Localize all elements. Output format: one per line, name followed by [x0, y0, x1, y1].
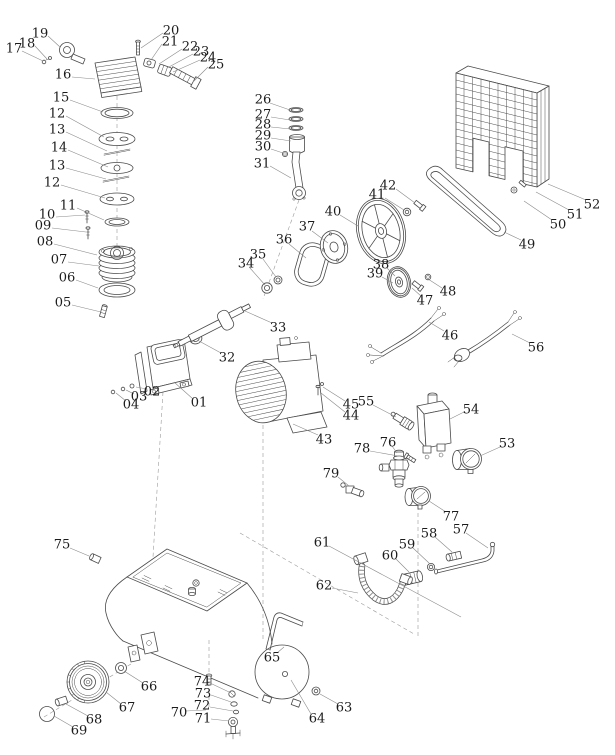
part-label-36: 36: [276, 233, 293, 248]
part-label-21: 21: [162, 35, 179, 50]
gasket-06: [99, 283, 135, 297]
part-label-31: 31: [254, 157, 271, 172]
leader-line-19-0: [48, 36, 60, 47]
screws-09-10: [85, 211, 90, 239]
valve-plate-stack: [85, 108, 135, 240]
tank-handle: [266, 613, 303, 650]
bearing-34: [262, 283, 272, 293]
leader-line-16-9: [72, 77, 95, 79]
pressure-gauge-53: [453, 449, 482, 474]
leader-line-59-64: [413, 548, 429, 563]
leader-line-72-77: [210, 707, 233, 711]
part-label-43: 43: [316, 433, 333, 448]
leader-line-73-76: [211, 695, 231, 702]
part-label-69: 69: [71, 724, 88, 739]
cylinder-07: [99, 246, 135, 282]
part-label-05: 05: [55, 296, 72, 311]
leader-line-57-62: [466, 533, 488, 548]
leader-line-58-63: [435, 537, 452, 552]
cap-69: [40, 707, 55, 722]
part-label-61: 61: [314, 536, 331, 551]
part-label-40: 40: [325, 205, 342, 220]
bolt-47: [411, 280, 423, 292]
part-label-60: 60: [382, 549, 399, 564]
leader-line-62-67: [332, 588, 358, 593]
leader-line-11-16: [77, 208, 104, 220]
part-label-25: 25: [208, 58, 225, 73]
leader-line-05-22: [72, 305, 101, 312]
bearing-cover-37: [317, 228, 352, 267]
exploded-parts-diagram: 1918172021222324251615121314131211100908…: [0, 0, 615, 755]
connecting-rod-31: [292, 152, 303, 188]
leader-line-12-15: [61, 185, 105, 198]
leader-line-31-28: [270, 166, 291, 178]
part-label-59: 59: [399, 538, 416, 553]
part-label-07: 07: [51, 253, 68, 268]
leader-line-24-7: [173, 60, 200, 72]
part-label-13: 13: [49, 123, 66, 138]
part-label-12: 12: [49, 107, 66, 122]
part-label-70: 70: [171, 706, 188, 721]
leader-line-20-3: [141, 33, 163, 48]
leader-line-12-11: [66, 116, 104, 137]
part-label-35: 35: [250, 248, 267, 263]
leader-line-44-53: [321, 393, 345, 412]
part-label-78: 78: [354, 442, 371, 457]
pipe-clamp-19: [42, 43, 85, 65]
diagram-canvas: 1918172021222324251615121314131211100908…: [0, 0, 615, 755]
part-label-67: 67: [119, 701, 136, 716]
tank-platform: [127, 549, 247, 611]
part-label-51: 51: [567, 208, 584, 223]
bolt-25: [169, 65, 202, 89]
washer-72: [233, 710, 238, 714]
part-label-17: 17: [6, 42, 23, 57]
motor-wires-46: [366, 306, 445, 363]
motor-43: [230, 337, 327, 434]
belt-guard-50-52: [456, 58, 549, 200]
washer-35: [274, 276, 282, 284]
safety-valve-55: [389, 410, 415, 431]
leader-line-50-47: [524, 201, 552, 220]
part-label-09: 09: [35, 219, 52, 234]
leader-line-53-57: [480, 447, 500, 456]
leader-line-06-21: [76, 280, 98, 288]
leader-line-29-26: [271, 138, 291, 141]
leader-line-42-41: [396, 189, 415, 203]
part-label-62: 62: [316, 579, 333, 594]
leader-line-27-24: [271, 117, 290, 120]
part-label-50: 50: [550, 218, 567, 233]
part-label-79: 79: [323, 467, 340, 482]
part-label-47: 47: [417, 294, 434, 309]
part-label-13: 13: [49, 159, 66, 174]
leader-line-21-4: [151, 44, 162, 60]
part-label-57: 57: [453, 523, 470, 538]
part-label-71: 71: [195, 712, 212, 727]
wheel-group: [40, 661, 127, 722]
pressure-gauge-77: [405, 487, 431, 510]
washer-41: [403, 208, 411, 216]
part-label-68: 68: [86, 713, 103, 728]
leader-line-15-10: [70, 100, 103, 112]
part-label-54: 54: [463, 403, 480, 418]
leader-line-52-49: [548, 184, 586, 200]
leader-line-28-25: [271, 127, 290, 129]
power-cord-56: [448, 311, 522, 368]
part-label-65: 65: [264, 651, 281, 666]
part-label-15: 15: [53, 91, 70, 106]
leader-line-45-54: [323, 387, 345, 401]
drain-plug-63: [312, 687, 320, 695]
part-label-01: 01: [191, 396, 208, 411]
elbow-fitting-79: [341, 483, 365, 498]
part-label-37: 37: [299, 220, 316, 235]
cylinder-head-16: [95, 57, 142, 98]
leader-line-18-1: [35, 46, 47, 59]
leader-line-10-17: [56, 215, 85, 217]
leader-line-14-13: [68, 150, 108, 167]
piston-group-26-31: [282, 108, 305, 201]
part-label-30: 30: [255, 140, 272, 155]
part-label-55: 55: [358, 395, 375, 410]
tank-leg: [141, 632, 158, 654]
fitting-58: [445, 551, 461, 561]
part-label-12: 12: [44, 176, 61, 191]
leader-line-32-33: [199, 341, 221, 353]
leader-line-71-78: [211, 719, 229, 721]
part-label-39: 39: [367, 267, 384, 282]
part-label-66: 66: [141, 680, 158, 695]
part-label-58: 58: [421, 527, 438, 542]
leader-line-30-27: [271, 149, 283, 153]
part-label-33: 33: [270, 321, 287, 336]
part-label-76: 76: [380, 436, 397, 451]
leader-line-40-39: [340, 215, 358, 226]
part-label-48: 48: [440, 285, 457, 300]
leader-line-68-72: [66, 704, 88, 716]
part-label-42: 42: [380, 179, 397, 194]
leader-line-17-2: [22, 51, 43, 61]
part-label-32: 32: [219, 351, 236, 366]
leader-line-13-14: [66, 168, 106, 179]
leader-line-33-34: [245, 311, 272, 323]
part-label-56: 56: [528, 341, 545, 356]
part-label-08: 08: [37, 235, 54, 250]
part-label-52: 52: [584, 198, 601, 213]
pressure-switch-54: [417, 393, 451, 459]
part-label-14: 14: [51, 141, 68, 156]
head-bolt-20: [136, 40, 141, 55]
part-label-26: 26: [255, 93, 272, 108]
washer-48: [425, 274, 431, 280]
part-label-46: 46: [442, 329, 459, 344]
part-label-49: 49: [519, 238, 536, 253]
bolt-42: [413, 200, 426, 212]
tank-body: [105, 577, 127, 641]
part-label-04: 04: [123, 398, 140, 413]
leader-line-09-18: [52, 228, 86, 232]
axle-pin-68: [54, 696, 67, 706]
bolt-05: [100, 304, 108, 317]
outlet-pipe-57: [435, 542, 495, 574]
part-label-16: 16: [55, 68, 72, 83]
part-label-06: 06: [59, 271, 76, 286]
leader-line-75-68: [70, 548, 89, 556]
leader-line-55-55: [373, 405, 396, 417]
leader-line-51-48: [536, 192, 569, 210]
leader-line-26-23: [270, 103, 290, 110]
leader-line-07-20: [68, 262, 99, 266]
part-label-75: 75: [54, 538, 71, 553]
part-label-53: 53: [499, 437, 516, 452]
part-label-64: 64: [309, 712, 326, 727]
wrist-pin-30: [282, 151, 287, 156]
part-label-11: 11: [60, 199, 77, 214]
washer-59: [427, 563, 434, 570]
part-label-63: 63: [336, 701, 353, 716]
guard-screw: [511, 187, 517, 193]
bolt-75: [89, 553, 101, 563]
washer-73: [231, 702, 237, 706]
